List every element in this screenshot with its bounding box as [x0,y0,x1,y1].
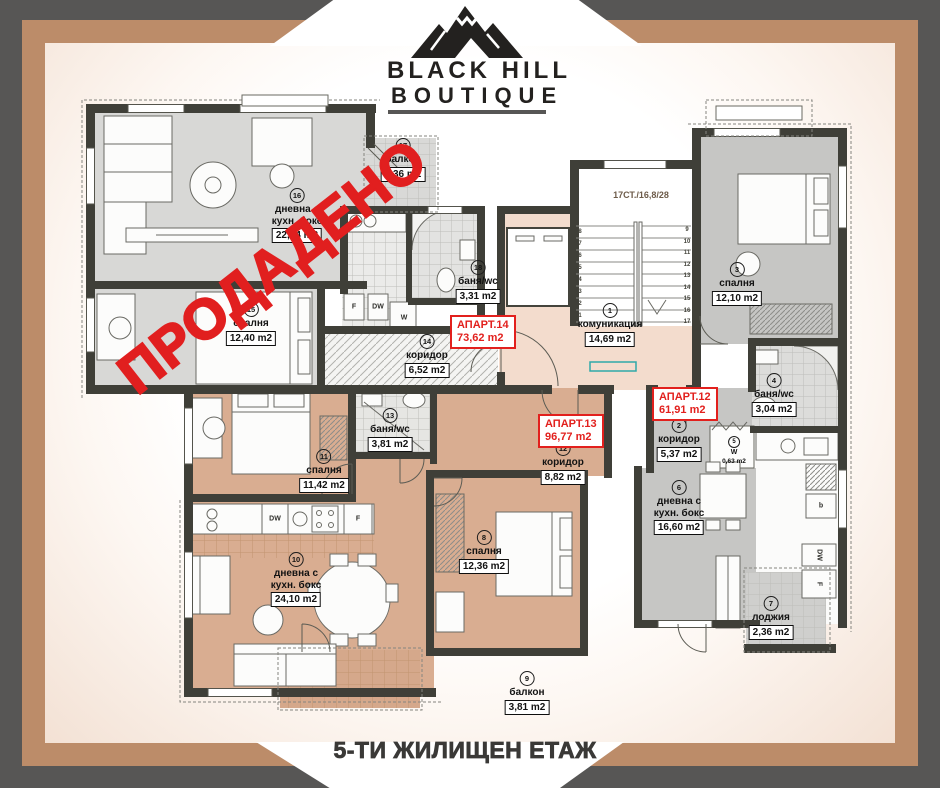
logo: BLACK HILL BOUTIQUE [387,4,547,114]
logo-underline [388,110,546,114]
floor-title: 5-ТИ ЖИЛИЩЕН ЕТАЖ [333,737,596,764]
room-1-floor [499,316,699,390]
stairs-dimensions-label: 17СТ./16,8/28 [613,190,669,200]
logo-title: BLACK HILL [387,58,547,84]
mountain-logo-icon [405,4,529,58]
logo-subtitle: BOUTIQUE [391,84,547,108]
